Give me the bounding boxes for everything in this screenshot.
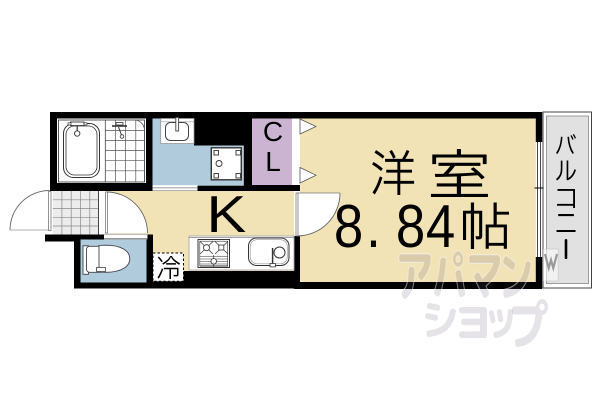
svg-text:.: . <box>366 193 381 260</box>
svg-text:C: C <box>263 116 283 147</box>
svg-text:8: 8 <box>334 193 363 260</box>
svg-text:8: 8 <box>396 193 425 260</box>
svg-text:K: K <box>207 185 247 244</box>
svg-text:4: 4 <box>426 193 455 260</box>
svg-text:L: L <box>265 146 281 177</box>
